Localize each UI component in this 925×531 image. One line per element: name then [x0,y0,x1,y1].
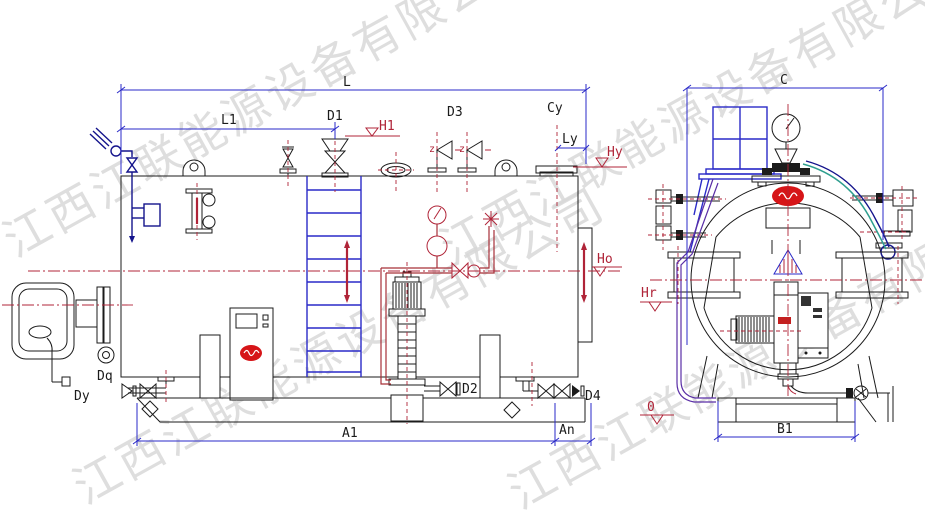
nozzle-label-cy: Cy [547,101,563,116]
support-column [480,335,500,398]
nozzle-label-d2: D2 [462,382,478,397]
thermometer [344,240,350,303]
drawing-page: 江西江联能源设备有限公司 江西江联能源设备有限公司 江西江联能源设备有限公司 江… [0,0,925,531]
nozzle-label-dy: Dy [74,389,90,404]
pressure-gauge-end [752,114,820,186]
lifting-lug [495,160,517,176]
level-label-hr: Hr [641,286,657,301]
dim-label-c: C [780,73,788,88]
side-view: L L1 Ly A1 An H1 [2,75,674,446]
level-label-h1: H1 [379,119,395,134]
level-label-ho: Ho [597,252,613,267]
dim-label-l: L [343,75,351,90]
safety-valve-mark-z: z [459,144,465,155]
dim-label-an: An [559,423,575,438]
dim-label-b1: B1 [777,422,793,437]
control-cabinet [230,308,273,400]
top-fittings [183,139,577,177]
pump-suction-valve [424,382,460,396]
dim-label-a1: A1 [342,426,358,441]
gas-inlet [98,347,114,363]
nozzle-label-dq: Dq [97,369,113,384]
dim-label-l1: L1 [221,113,237,128]
safety-valve-mark-z: z [429,144,435,155]
discharge-pipe [803,161,889,249]
steam-valve-end [772,163,800,172]
boiler-ga-drawing: 江西江联能源设备有限公司 江西江联能源设备有限公司 江西江联能源设备有限公司 江… [0,0,925,531]
nozzle-label-d3: D3 [447,105,463,120]
burner-tag [778,317,791,324]
feedwater-inlet-star [483,211,499,227]
dim-label-ly: Ly [562,132,578,147]
rear-blowdown-valve [504,362,584,418]
nozzle-label-d4: D4 [585,389,601,404]
oil-connection [62,377,70,386]
side-manhole-left [668,246,740,304]
level-label-hy: Hy [607,145,623,160]
support-column [200,335,220,398]
nozzle-label-d1: D1 [327,109,343,124]
level-label-datum: 0 [647,400,655,415]
